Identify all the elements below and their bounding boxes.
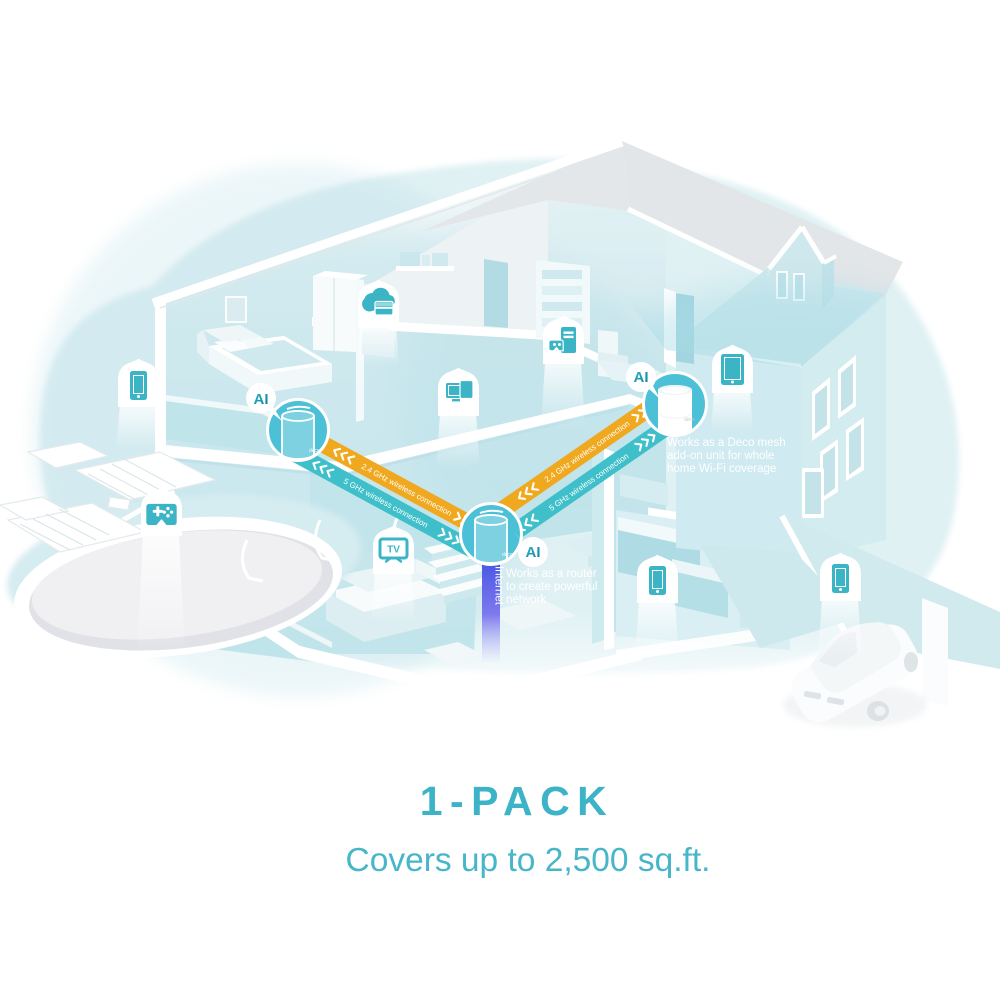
svg-text:add-on unit for whole: add-on unit for whole: [667, 450, 774, 462]
svg-text:Internet: Internet: [493, 566, 505, 606]
svg-text:to create powerful: to create powerful: [506, 581, 597, 593]
svg-text:Works as a Deco mesh: Works as a Deco mesh: [667, 437, 786, 449]
svg-text:deco: deco: [684, 417, 695, 423]
svg-text:deco: deco: [502, 552, 513, 558]
svg-text:Covers up to 2,500 sq.ft.: Covers up to 2,500 sq.ft.: [346, 842, 711, 879]
svg-text:home Wi-Fi coverage: home Wi-Fi coverage: [667, 463, 776, 475]
svg-text:AI: AI: [526, 544, 541, 561]
svg-text:TV: TV: [387, 545, 400, 556]
svg-text:Works as a router: Works as a router: [506, 568, 597, 580]
svg-text:AI: AI: [634, 369, 649, 386]
svg-text:1-PACK: 1-PACK: [420, 778, 615, 824]
svg-text:deco: deco: [309, 448, 320, 454]
svg-text:AI: AI: [254, 391, 269, 408]
svg-text:network: network: [506, 594, 547, 606]
